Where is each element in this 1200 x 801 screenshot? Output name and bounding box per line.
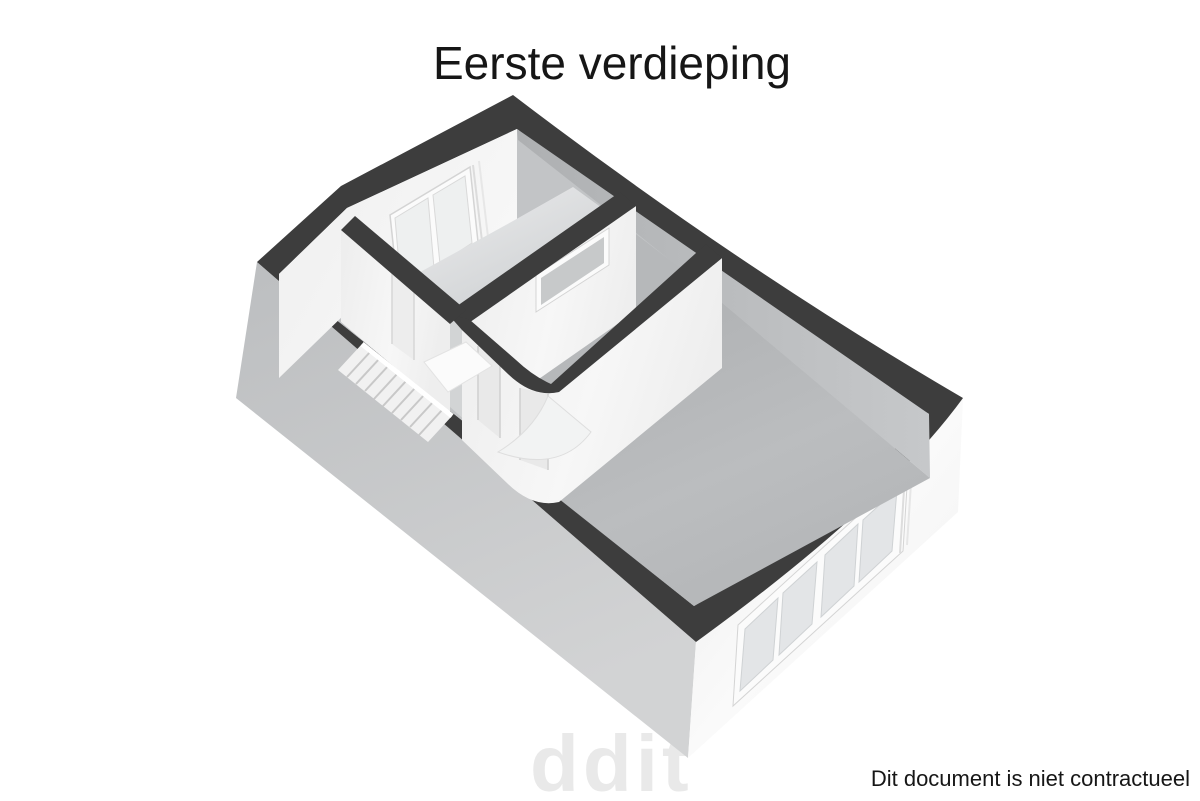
floor-plan-canvas: ddit bbox=[0, 0, 1200, 801]
disclaimer-text: Dit document is niet contractueel bbox=[871, 766, 1190, 791]
building bbox=[236, 95, 963, 758]
page-title: Eerste verdieping bbox=[433, 37, 791, 89]
footer: Dit document is niet contractueel bbox=[871, 766, 1190, 791]
floorplan-page: ddit bbox=[0, 0, 1200, 801]
header: Eerste verdieping bbox=[433, 37, 791, 89]
